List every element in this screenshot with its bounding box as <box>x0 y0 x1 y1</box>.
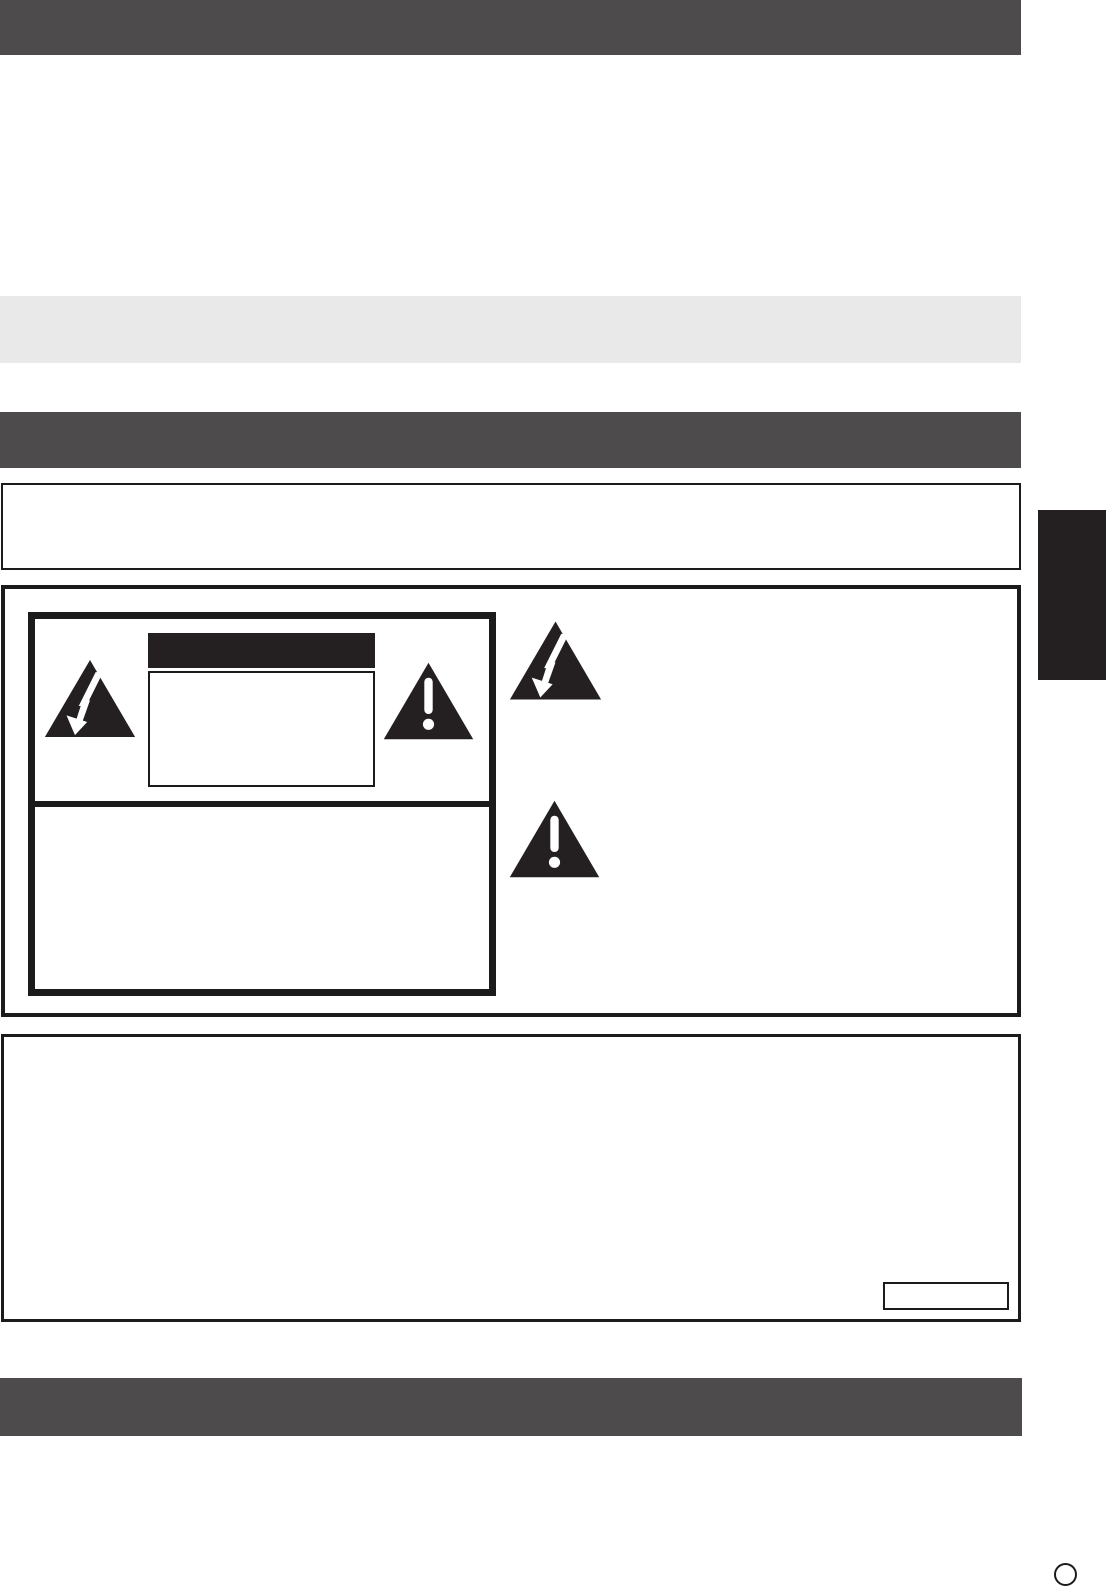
top-title-banner <box>0 0 1021 55</box>
caution-label <box>28 612 496 996</box>
section-header-banner <box>0 412 1021 468</box>
caution-label-header-bar <box>148 633 375 668</box>
caution-label-text-panel <box>148 671 375 787</box>
notice-box <box>1 483 1021 570</box>
warning-text-box <box>1 1034 1021 1322</box>
caution-alert-icon <box>506 798 603 880</box>
safety-warning-box <box>1 585 1021 1017</box>
model-number-rect <box>883 1282 1009 1310</box>
bottom-section-banner <box>0 1378 1022 1436</box>
section-side-tab <box>1038 510 1106 680</box>
high-voltage-warning-icon <box>508 618 603 703</box>
high-voltage-warning-icon <box>43 657 137 740</box>
subtitle-band <box>0 296 1021 363</box>
caution-label-divider <box>35 801 489 807</box>
manual-page <box>0 0 1106 1588</box>
page-number-circle <box>1054 1563 1077 1586</box>
caution-alert-icon <box>380 660 477 742</box>
